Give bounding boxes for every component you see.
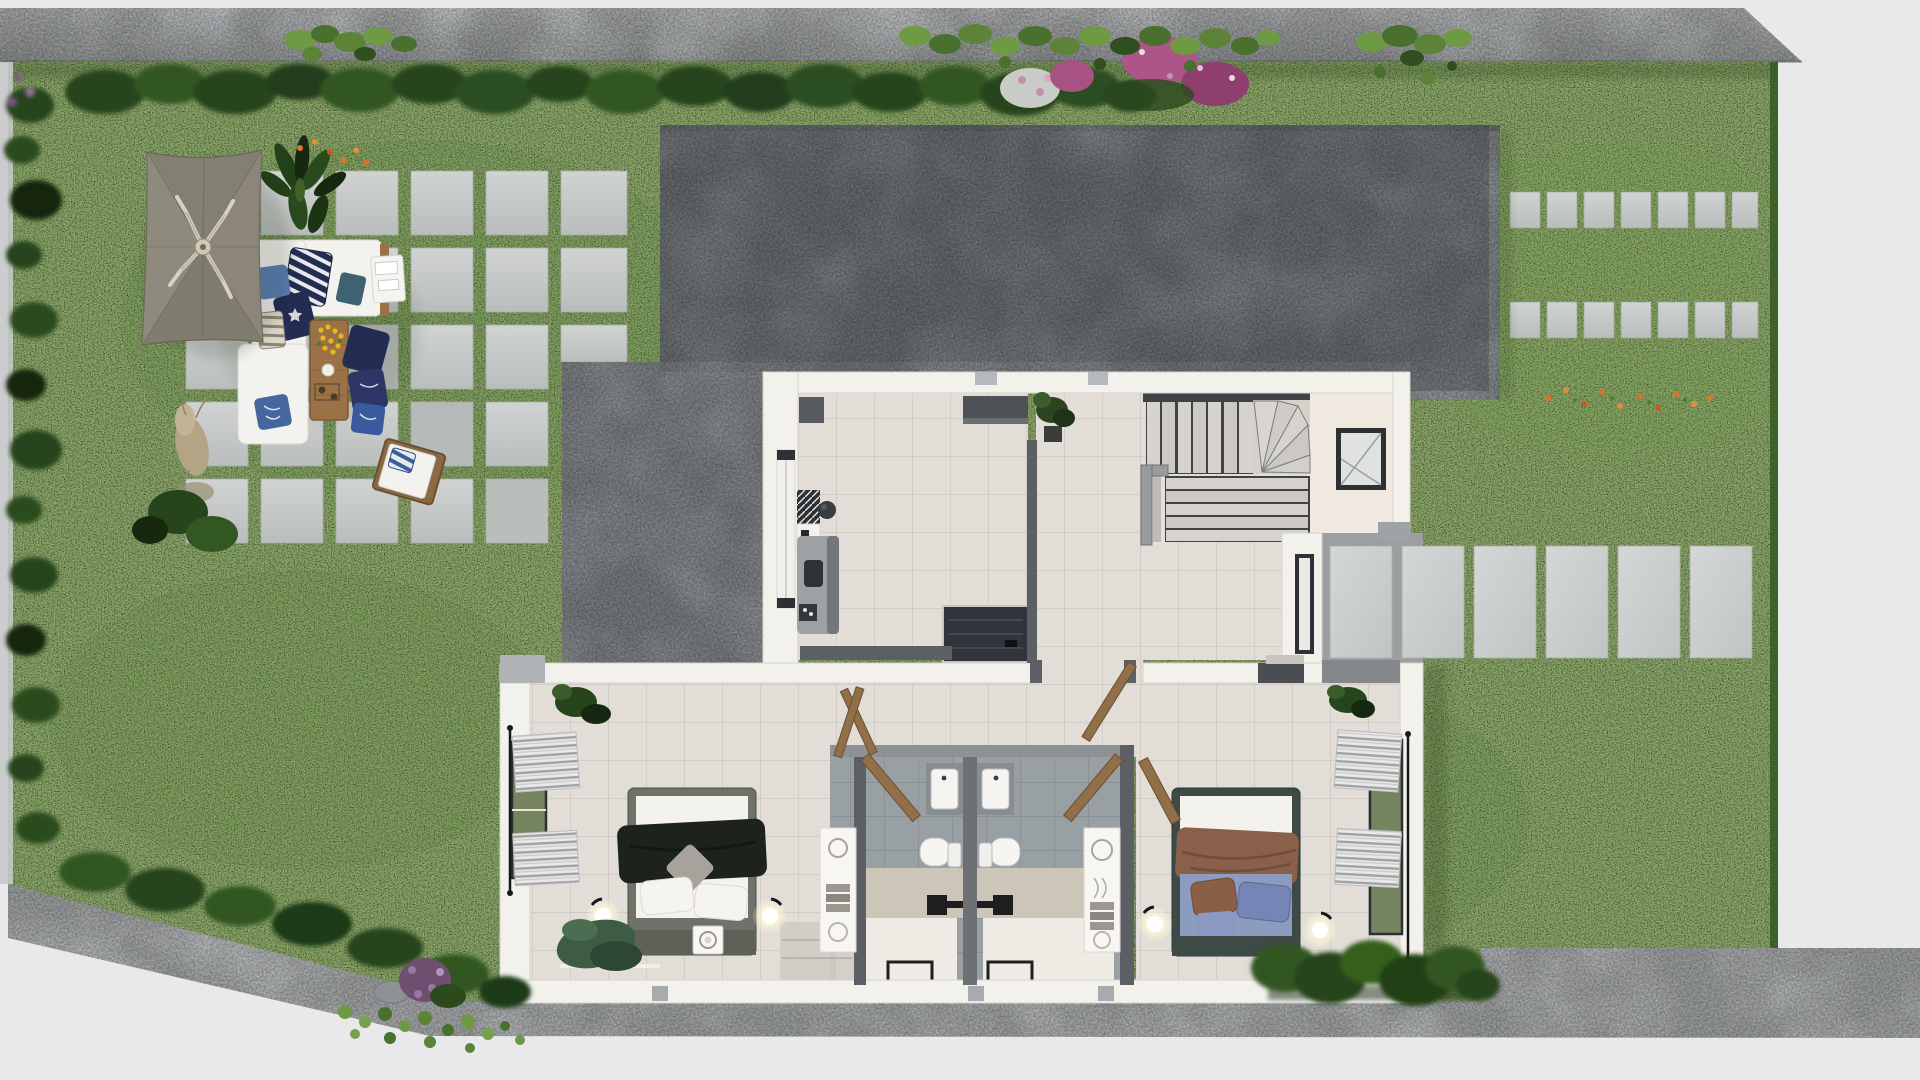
shelf-unit-left (820, 828, 856, 952)
radiator (513, 830, 580, 885)
roof-shadow-right (1500, 130, 1512, 398)
coffee-table (310, 320, 348, 420)
stair-railing (1141, 465, 1152, 545)
radiator (1335, 828, 1402, 887)
rug (797, 490, 820, 528)
corner-cap (500, 655, 545, 683)
cushion-pattern-blue (253, 393, 292, 430)
bottom-right-hedge (1251, 940, 1500, 1006)
shelf-unit-right (1084, 828, 1120, 952)
living-window (777, 450, 795, 608)
washing-machine (693, 926, 723, 954)
floor-plan-render: Top-down 3D render — upper floor plan wi… (0, 0, 1920, 1080)
living-room-furniture (797, 490, 839, 634)
porch-wall (1322, 660, 1400, 683)
side-table (371, 255, 406, 303)
entry-threshold (1266, 655, 1304, 664)
stair-void (943, 606, 1028, 662)
shower-head (993, 895, 1013, 915)
radiator (512, 732, 580, 792)
shower-head (927, 895, 947, 915)
parapet-cap (1378, 522, 1410, 540)
pouf (818, 501, 836, 519)
bed-left (617, 788, 768, 955)
toilet (990, 838, 1020, 866)
landing-skylight (1336, 428, 1386, 490)
bidet (948, 843, 961, 867)
toilet (920, 838, 950, 866)
bed-right (1172, 788, 1300, 956)
wall-unit (799, 397, 824, 423)
scene-root: Top-down 3D render — upper floor plan wi… (0, 0, 1920, 1080)
radiator (1334, 730, 1402, 792)
bidet (979, 843, 992, 867)
staircase (1141, 393, 1310, 545)
